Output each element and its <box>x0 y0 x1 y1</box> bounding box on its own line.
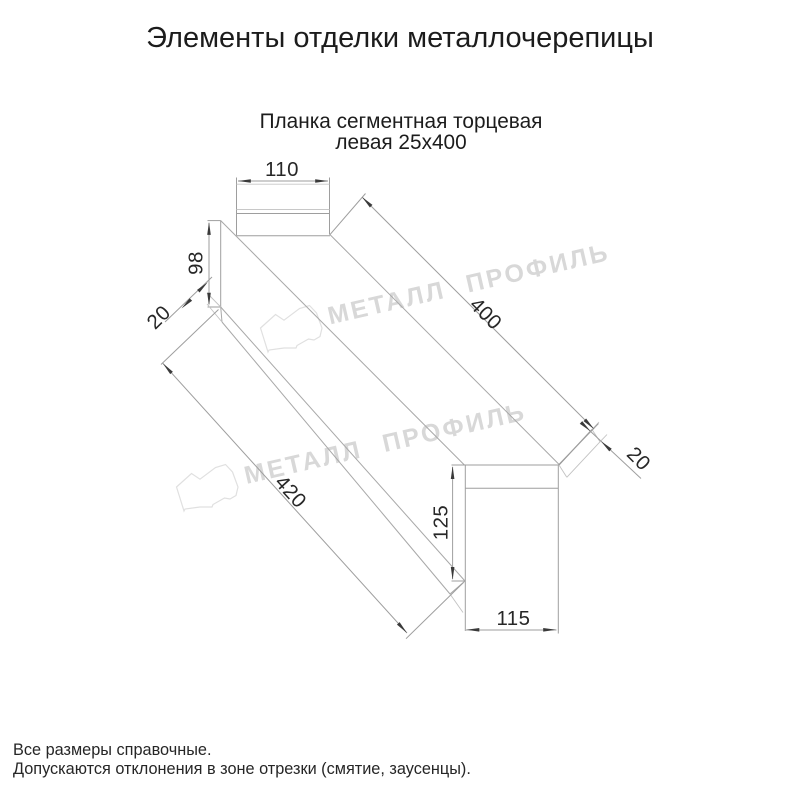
svg-text:98: 98 <box>186 251 208 275</box>
svg-text:125: 125 <box>431 505 453 541</box>
svg-text:115: 115 <box>496 608 530 630</box>
svg-text:20: 20 <box>143 302 175 334</box>
svg-text:20: 20 <box>622 443 654 475</box>
svg-text:МЕТАЛЛ ПРОФИЛЬ: МЕТАЛЛ ПРОФИЛЬ <box>325 238 612 330</box>
svg-text:110: 110 <box>265 159 299 181</box>
svg-text:400: 400 <box>465 294 506 335</box>
